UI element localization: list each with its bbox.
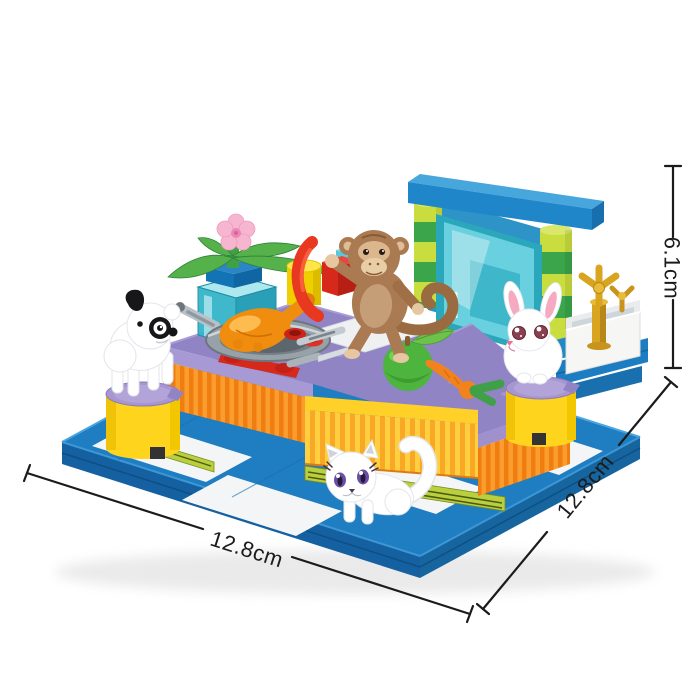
dog-figure — [104, 290, 180, 396]
toy-illustration: 12.8cm 12.8cm 6.1cm — [0, 0, 700, 700]
dimension-label-height: 6.1cm — [659, 237, 684, 299]
stool-left — [106, 382, 184, 459]
product-photo: 12.8cm 12.8cm 6.1cm — [0, 0, 700, 700]
stool-right — [506, 377, 580, 447]
dog-eye-swirl — [149, 317, 171, 339]
dog-ear-patch — [126, 290, 144, 311]
dog-nose — [169, 328, 178, 337]
